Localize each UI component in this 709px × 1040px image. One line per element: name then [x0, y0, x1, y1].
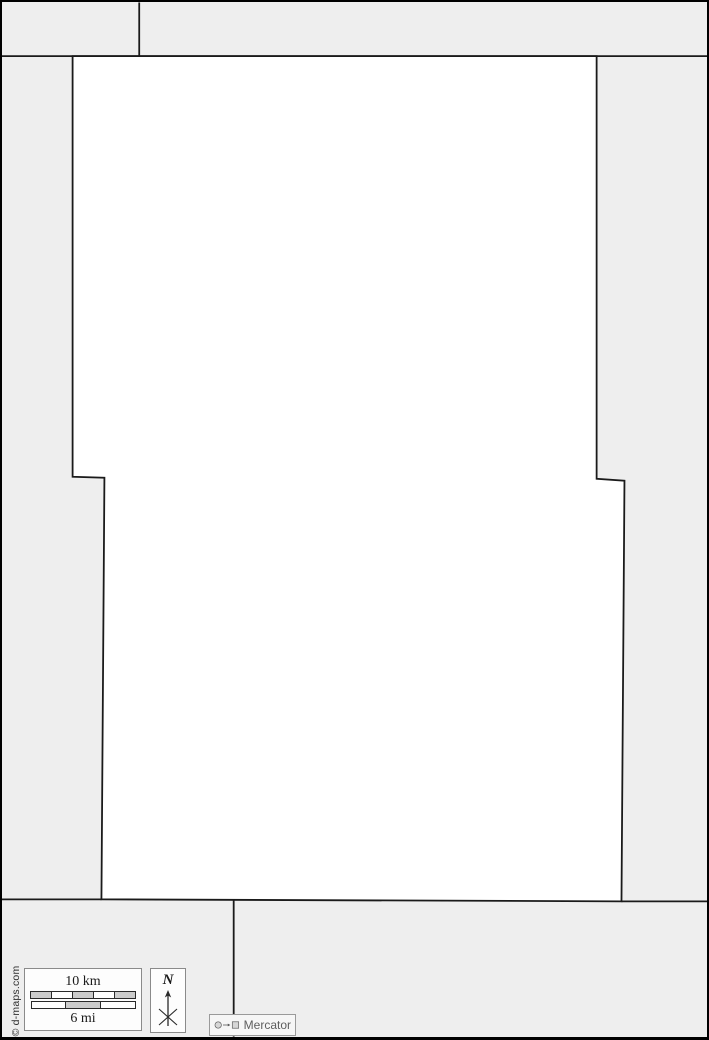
scale-segment [114, 992, 135, 998]
km-scale-ruler [30, 991, 136, 999]
scale-km-label: 10 km [65, 974, 100, 989]
scale-segment [100, 1002, 135, 1008]
scale-segment [93, 992, 114, 998]
map-canvas: 10 km 6 mi N Mercator © d-maps.com [0, 0, 709, 1040]
north-indicator: N [150, 968, 186, 1033]
scale-segment [32, 1002, 66, 1008]
north-arrow-icon [155, 988, 181, 1028]
base-map [2, 2, 707, 1037]
region-shape [73, 56, 625, 901]
scale-segment [31, 992, 51, 998]
scale-segment [72, 992, 93, 998]
projection-label: Mercator [244, 1018, 291, 1032]
scale-mi-label: 6 mi [70, 1011, 95, 1026]
north-label: N [163, 972, 174, 988]
scale-bar: 10 km 6 mi [24, 968, 142, 1031]
copyright-text: © d-maps.com [10, 966, 22, 1037]
projection-badge: Mercator [209, 1014, 296, 1036]
scale-segment [51, 992, 72, 998]
projection-icon [214, 1018, 240, 1032]
scale-segment [65, 1002, 100, 1008]
mi-scale-ruler [31, 1001, 136, 1009]
